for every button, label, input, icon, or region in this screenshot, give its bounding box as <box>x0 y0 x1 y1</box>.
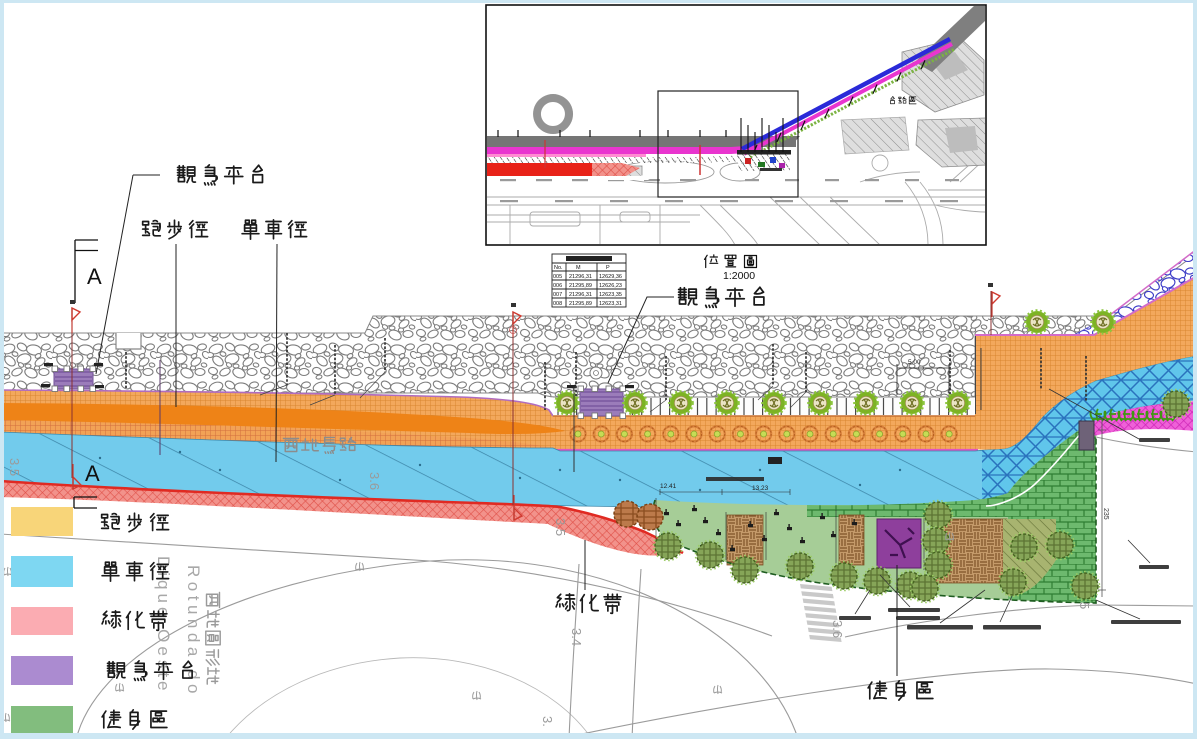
svg-text:007: 007 <box>553 292 562 298</box>
svg-text:3.6: 3.6 <box>367 472 382 490</box>
svg-text:12623,35: 12623,35 <box>599 292 622 298</box>
svg-text:13.23: 13.23 <box>752 485 769 492</box>
svg-text:1:2000: 1:2000 <box>723 270 755 282</box>
svg-text:008: 008 <box>553 301 562 307</box>
svg-text:12629,36: 12629,36 <box>599 274 622 280</box>
svg-text:5.00: 5.00 <box>908 359 921 366</box>
svg-text:3.4: 3.4 <box>569 628 584 646</box>
svg-text:3.5: 3.5 <box>7 458 22 476</box>
svg-text:21295,89: 21295,89 <box>569 283 592 289</box>
svg-text:12626,23: 12626,23 <box>599 283 622 289</box>
svg-text:P: P <box>606 265 610 271</box>
svg-text:235: 235 <box>1102 508 1109 520</box>
svg-text:3.6: 3.6 <box>830 620 845 638</box>
svg-text:21296,31: 21296,31 <box>569 274 592 280</box>
svg-text:3.5: 3.5 <box>553 518 568 536</box>
svg-text:21295,89: 21295,89 <box>569 301 592 307</box>
svg-text:5: 5 <box>1077 602 1092 609</box>
svg-text:12.41: 12.41 <box>660 483 677 490</box>
svg-text:005: 005 <box>553 274 562 280</box>
svg-text:006: 006 <box>553 283 562 289</box>
svg-text:12623,31: 12623,31 <box>599 301 622 307</box>
svg-text:3.: 3. <box>540 716 555 727</box>
svg-text:21296,31: 21296,31 <box>569 292 592 298</box>
svg-text:M: M <box>576 265 581 271</box>
svg-text:No.: No. <box>554 265 563 271</box>
svg-text:A: A <box>85 461 100 486</box>
svg-text:A: A <box>87 264 102 289</box>
